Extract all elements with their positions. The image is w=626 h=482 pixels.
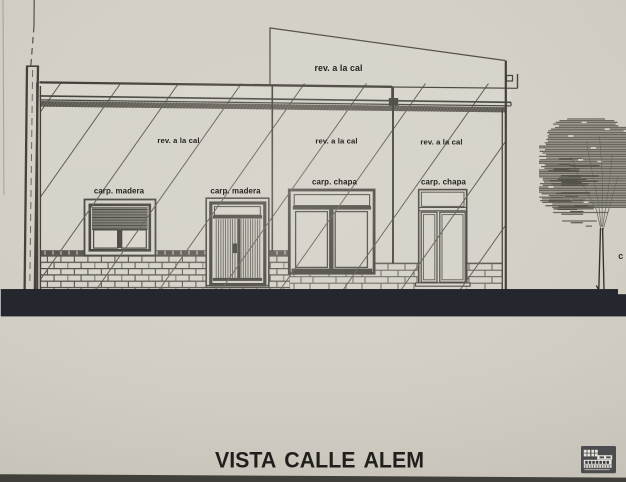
svg-text:rev. a la cal: rev. a la cal bbox=[315, 137, 357, 146]
svg-text:carp. madera: carp. madera bbox=[210, 187, 261, 196]
svg-text:rev. a la cal: rev. a la cal bbox=[157, 136, 199, 145]
svg-text:rev. a la cal: rev. a la cal bbox=[420, 138, 462, 147]
svg-text:c: c bbox=[618, 251, 623, 261]
svg-text:carp. madera: carp. madera bbox=[94, 187, 145, 196]
svg-text:carp. chapa: carp. chapa bbox=[421, 178, 466, 187]
svg-text:rev. a la cal: rev. a la cal bbox=[314, 63, 362, 73]
svg-text:carp. chapa: carp. chapa bbox=[312, 178, 357, 187]
svg-text:VISTA CALLE ALEM: VISTA CALLE ALEM bbox=[215, 448, 424, 473]
